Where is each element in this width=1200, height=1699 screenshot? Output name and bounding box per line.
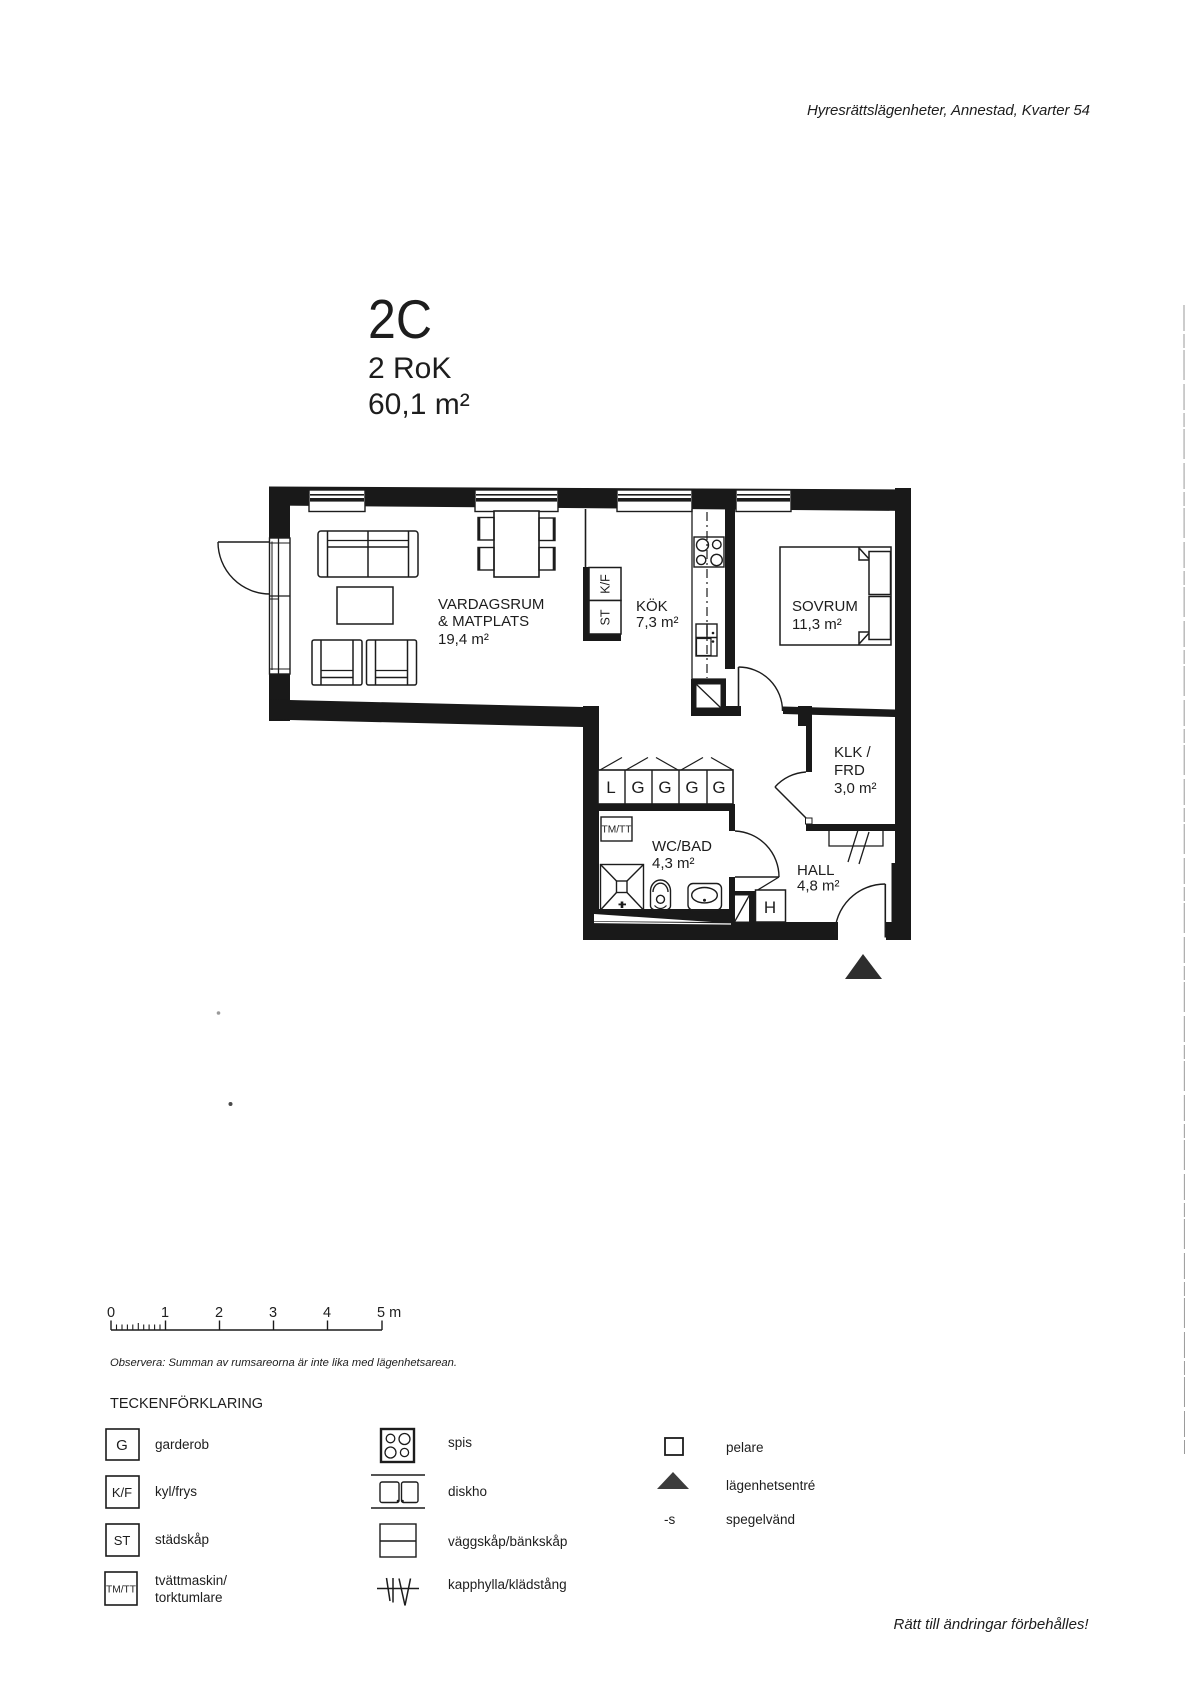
svg-text:torktumlare: torktumlare — [155, 1590, 223, 1605]
svg-text:ST: ST — [114, 1533, 131, 1548]
svg-text:TM/TT: TM/TT — [602, 825, 632, 836]
svg-text:TM/TT: TM/TT — [106, 1585, 136, 1596]
svg-text:4,3 m²: 4,3 m² — [652, 855, 695, 872]
svg-text:KÖK: KÖK — [636, 597, 668, 615]
svg-text:1: 1 — [161, 1305, 169, 1321]
svg-text:-s: -s — [664, 1512, 675, 1527]
svg-text:Hyresrättslägenheter, Annestad: Hyresrättslägenheter, Annestad, Kvarter … — [807, 102, 1090, 119]
svg-text:tvättmaskin/: tvättmaskin/ — [155, 1573, 227, 1588]
svg-text:2C: 2C — [368, 288, 432, 350]
svg-text:60,1 m²: 60,1 m² — [368, 388, 470, 421]
svg-text:städskåp: städskåp — [155, 1532, 209, 1547]
svg-text:2 RoK: 2 RoK — [368, 352, 451, 385]
svg-text:SOVRUM: SOVRUM — [792, 598, 858, 615]
svg-text:H: H — [764, 898, 776, 917]
svg-text:TECKENFÖRKLARING: TECKENFÖRKLARING — [110, 1394, 263, 1412]
svg-text:7,3 m²: 7,3 m² — [636, 614, 679, 631]
svg-text:ST: ST — [599, 609, 613, 625]
svg-text:lägenhetsentré: lägenhetsentré — [726, 1478, 815, 1493]
svg-text:WC/BAD: WC/BAD — [652, 838, 712, 855]
svg-text:G: G — [116, 1437, 128, 1454]
svg-text:pelare: pelare — [726, 1440, 764, 1455]
svg-text:Rätt till ändringar förbehålle: Rätt till ändringar förbehålles! — [894, 1616, 1090, 1633]
svg-text:5 m: 5 m — [377, 1305, 401, 1321]
svg-text:G: G — [712, 778, 725, 797]
svg-text:11,3 m²: 11,3 m² — [792, 616, 842, 633]
svg-text:G: G — [631, 778, 644, 797]
svg-text:spegelvänd: spegelvänd — [726, 1512, 795, 1527]
svg-text:kapphylla/klädstång: kapphylla/klädstång — [448, 1577, 567, 1592]
svg-text:K/F: K/F — [112, 1485, 132, 1500]
svg-text:4: 4 — [323, 1305, 331, 1321]
svg-text:kyl/frys: kyl/frys — [155, 1484, 197, 1499]
svg-text:FRD: FRD — [834, 762, 865, 779]
svg-text:L: L — [606, 778, 615, 797]
svg-text:4,8 m²: 4,8 m² — [797, 878, 840, 895]
svg-text:G: G — [658, 778, 671, 797]
svg-text:diskho: diskho — [448, 1484, 487, 1499]
svg-text:KLK /: KLK / — [834, 744, 872, 761]
svg-text:Observera: Summan av rumsareor: Observera: Summan av rumsareorna är inte… — [110, 1357, 457, 1369]
svg-text:VARDAGSRUM: VARDAGSRUM — [438, 596, 544, 613]
svg-text:0: 0 — [107, 1305, 115, 1321]
svg-text:& MATPLATS: & MATPLATS — [438, 613, 529, 630]
svg-text:3: 3 — [269, 1305, 277, 1321]
svg-text:K/F: K/F — [599, 574, 613, 594]
svg-text:2: 2 — [215, 1305, 223, 1321]
svg-text:spis: spis — [448, 1435, 472, 1450]
svg-text:G: G — [685, 778, 698, 797]
svg-text:19,4 m²: 19,4 m² — [438, 631, 489, 648]
svg-text:väggskåp/bänkskåp: väggskåp/bänkskåp — [448, 1534, 567, 1549]
svg-text:HALL: HALL — [797, 862, 835, 879]
svg-text:garderob: garderob — [155, 1437, 209, 1452]
svg-text:3,0 m²: 3,0 m² — [834, 780, 877, 797]
